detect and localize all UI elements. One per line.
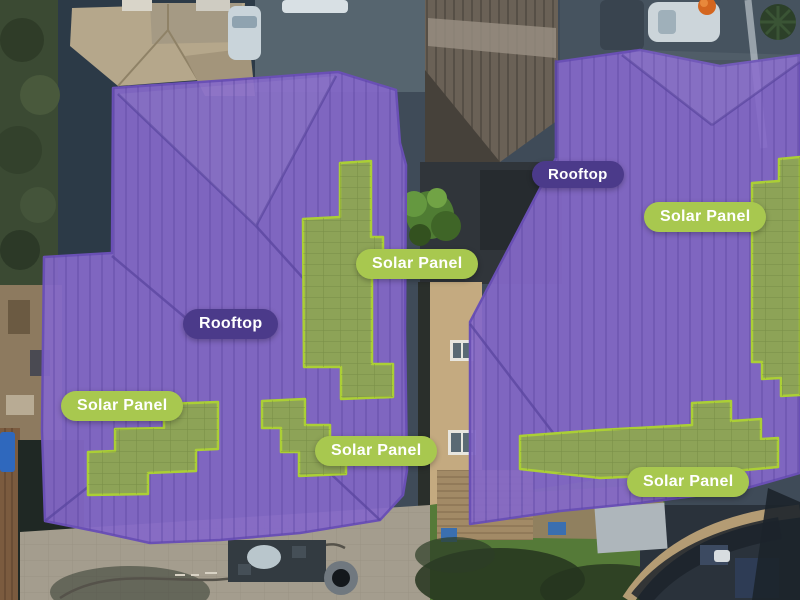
solar-panel-mask-right-edge[interactable] xyxy=(752,157,800,396)
rooftop-label[interactable]: Rooftop xyxy=(532,161,624,188)
solar-panel-label[interactable]: Solar Panel xyxy=(627,467,749,497)
aerial-photo xyxy=(0,0,800,600)
palm-tree xyxy=(760,4,796,40)
car-roof xyxy=(282,0,348,13)
solar-panel-label[interactable]: Solar Panel xyxy=(315,436,437,466)
hedge-trees xyxy=(0,0,60,300)
solar-panel-label[interactable]: Solar Panel xyxy=(61,391,183,421)
concrete-pad xyxy=(594,503,667,554)
aerial-annotation-view: Rooftop Solar Panel Solar Panel Solar Pa… xyxy=(0,0,800,600)
van xyxy=(600,0,644,50)
recycling-bin xyxy=(0,432,15,472)
rooftop-label[interactable]: Rooftop xyxy=(183,309,278,339)
solar-panel-label[interactable]: Solar Panel xyxy=(644,202,766,232)
car xyxy=(228,6,261,60)
solar-panel-label[interactable]: Solar Panel xyxy=(356,249,478,279)
patio-furniture xyxy=(228,540,326,582)
